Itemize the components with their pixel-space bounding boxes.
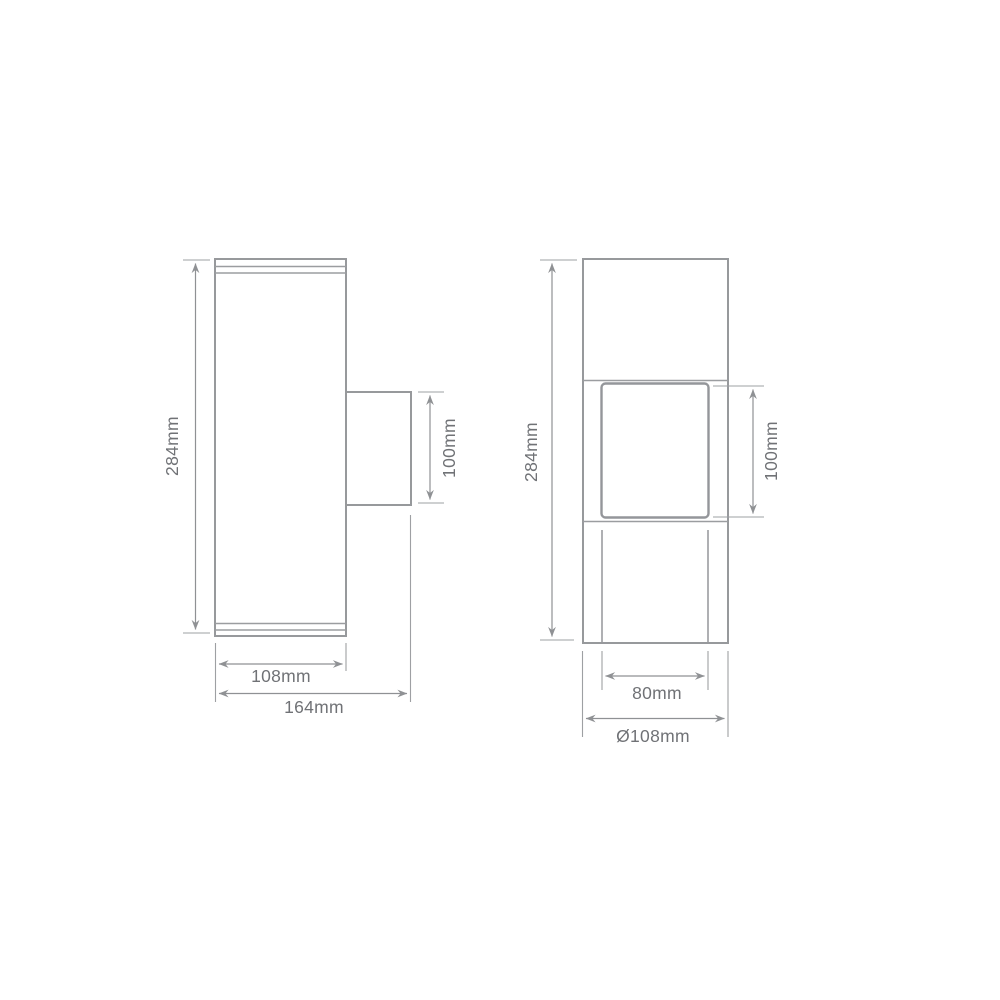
dim-label-side-bracket-height: 100mm [439,418,459,478]
side-view-body-outline [215,259,346,636]
side-view-dim-bracket-height: 100mm [418,392,459,503]
side-view-dim-overall-depth: 164mm [219,515,411,717]
front-view [583,259,728,643]
diagram-canvas: 284mm 100mm 108mm 164mm 284mm [0,0,1000,1000]
dim-label-side-body-width: 108mm [251,666,311,686]
side-view-dim-overall-height: 284mm [162,260,210,633]
dim-label-side-overall-height: 284mm [162,416,182,476]
front-view-window-outline [602,384,709,518]
dim-label-side-overall-depth: 164mm [284,697,344,717]
dim-label-front-body-diameter: Ø108mm [616,726,690,746]
dim-label-front-window-width: 80mm [632,683,682,703]
dimension-diagram: 284mm 100mm 108mm 164mm 284mm [0,0,1000,1000]
side-view [215,259,411,636]
dim-label-front-overall-height: 284mm [521,422,541,482]
front-view-body-outline [583,259,728,643]
front-view-dim-window-width: 80mm [602,651,708,703]
front-view-dim-overall-height: 284mm [521,260,577,640]
front-view-dim-window-height: 100mm [713,386,781,517]
side-view-wall-bracket-outline [346,392,411,505]
dim-label-front-window-height: 100mm [761,421,781,481]
